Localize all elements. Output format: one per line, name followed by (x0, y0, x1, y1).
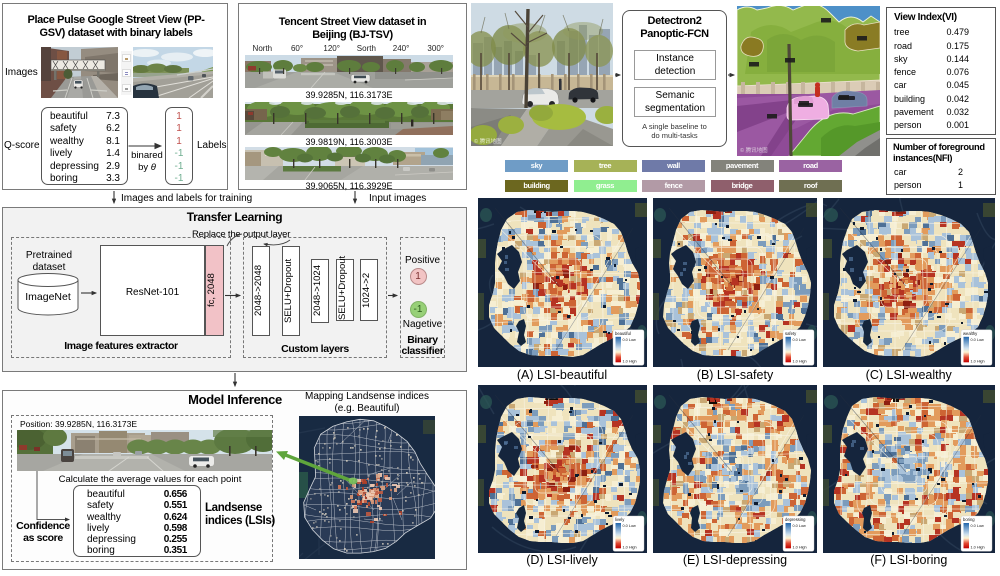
svg-text:0.0 Low: 0.0 Low (793, 524, 807, 528)
svg-text:0.0 Low: 0.0 Low (970, 338, 984, 342)
svg-text:wealthy: wealthy (963, 331, 978, 336)
svg-text:lively: lively (615, 517, 625, 522)
svg-text:1.0 High: 1.0 High (793, 359, 807, 363)
svg-text:1.0 High: 1.0 High (622, 545, 636, 549)
svg-text:ImageNet: ImageNet (25, 291, 71, 303)
svg-text:0.0 Low: 0.0 Low (622, 524, 636, 528)
svg-text:safety: safety (785, 331, 797, 336)
svg-text:1.0 High: 1.0 High (970, 545, 984, 549)
svg-text:0.0 Low: 0.0 Low (622, 338, 636, 342)
svg-text:beautiful: beautiful (615, 331, 631, 336)
svg-text:depressing: depressing (785, 517, 806, 522)
svg-text:1.0 High: 1.0 High (622, 359, 636, 363)
svg-text:1.0 High: 1.0 High (793, 545, 807, 549)
svg-text:0.0 Low: 0.0 Low (970, 524, 984, 528)
svg-text:boring: boring (963, 517, 975, 522)
svg-text:1.0 High: 1.0 High (970, 359, 984, 363)
svg-text:© 腾讯地图: © 腾讯地图 (740, 146, 768, 154)
svg-text:© 腾讯地图: © 腾讯地图 (474, 137, 502, 145)
svg-text:0.0 Low: 0.0 Low (793, 338, 807, 342)
